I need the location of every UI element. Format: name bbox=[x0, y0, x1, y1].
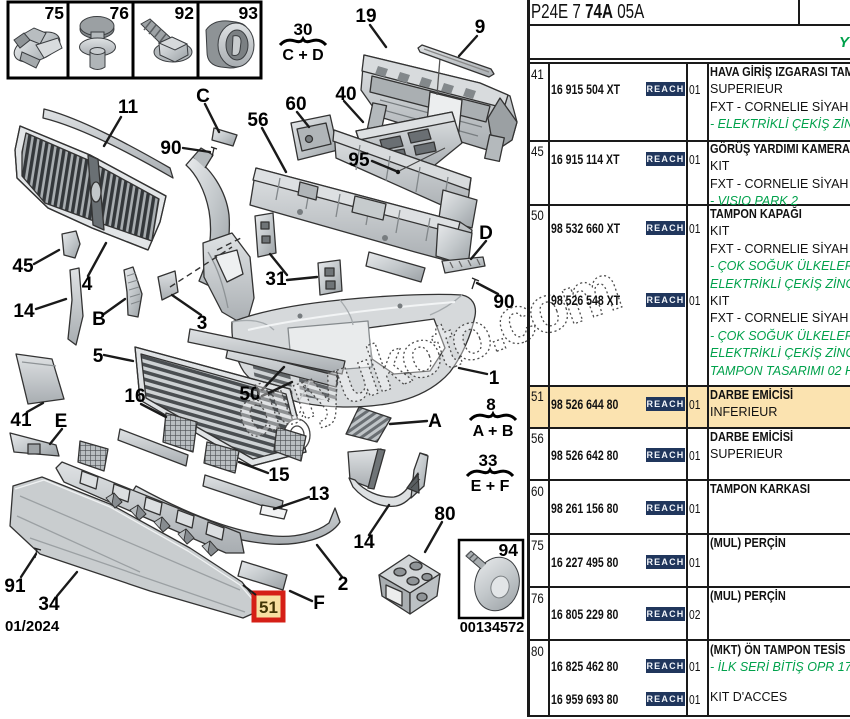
svg-text:16: 16 bbox=[124, 386, 145, 407]
svg-text:41: 41 bbox=[10, 410, 32, 431]
svg-text:80: 80 bbox=[434, 504, 455, 525]
svg-text:5: 5 bbox=[93, 346, 104, 367]
svg-text:4: 4 bbox=[82, 274, 93, 295]
svg-text:1: 1 bbox=[489, 368, 500, 389]
svg-text:75: 75 bbox=[45, 3, 65, 23]
svg-text:93: 93 bbox=[239, 3, 259, 23]
svg-text:92: 92 bbox=[175, 3, 195, 23]
svg-text:E + F: E + F bbox=[471, 478, 510, 495]
svg-text:76: 76 bbox=[110, 3, 130, 23]
svg-text:00134572: 00134572 bbox=[460, 620, 525, 636]
svg-text:3: 3 bbox=[197, 313, 208, 334]
svg-text:34: 34 bbox=[38, 594, 60, 615]
svg-text:8: 8 bbox=[486, 395, 495, 414]
svg-text:A + B: A + B bbox=[473, 423, 514, 440]
svg-text:60: 60 bbox=[285, 94, 306, 115]
svg-text:45: 45 bbox=[12, 256, 34, 277]
svg-text:40: 40 bbox=[335, 84, 356, 105]
svg-text:B: B bbox=[92, 309, 106, 330]
svg-text:14: 14 bbox=[13, 301, 35, 322]
svg-text:56: 56 bbox=[247, 110, 268, 131]
svg-text:C: C bbox=[196, 86, 210, 107]
svg-text:13: 13 bbox=[308, 484, 329, 505]
svg-text:E: E bbox=[55, 411, 68, 432]
svg-text:91: 91 bbox=[4, 576, 26, 597]
svg-text:15: 15 bbox=[268, 465, 290, 486]
svg-text:33: 33 bbox=[479, 451, 498, 470]
svg-text:11: 11 bbox=[118, 97, 139, 118]
svg-text:01/2024: 01/2024 bbox=[5, 618, 60, 635]
svg-text:19: 19 bbox=[355, 6, 376, 27]
svg-text:A: A bbox=[428, 411, 442, 432]
svg-text:9: 9 bbox=[475, 17, 486, 38]
svg-text:D: D bbox=[479, 223, 493, 244]
svg-text:51: 51 bbox=[259, 598, 278, 617]
svg-text:90: 90 bbox=[160, 138, 181, 159]
svg-text:2: 2 bbox=[338, 574, 349, 595]
svg-text:95: 95 bbox=[348, 150, 370, 171]
svg-text:31: 31 bbox=[265, 269, 287, 290]
svg-text:14: 14 bbox=[353, 532, 375, 553]
svg-text:C + D: C + D bbox=[282, 47, 323, 64]
svg-text:F: F bbox=[313, 593, 325, 614]
